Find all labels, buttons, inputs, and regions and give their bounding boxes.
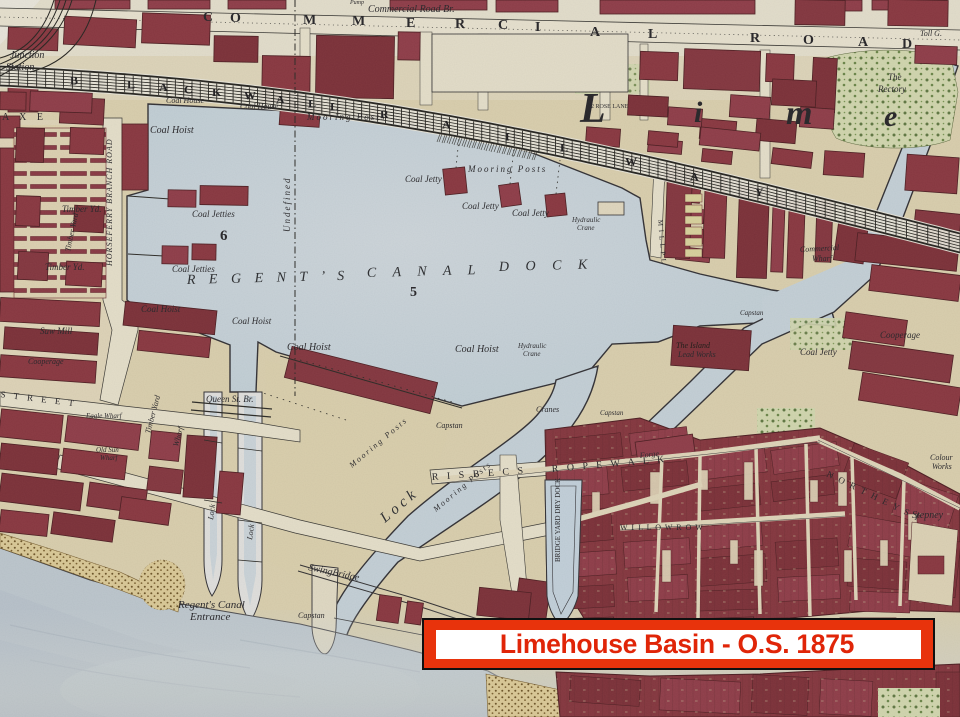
svg-text:Limehouse Basin - O.S. 1875: Limehouse Basin - O.S. 1875 <box>500 629 854 659</box>
